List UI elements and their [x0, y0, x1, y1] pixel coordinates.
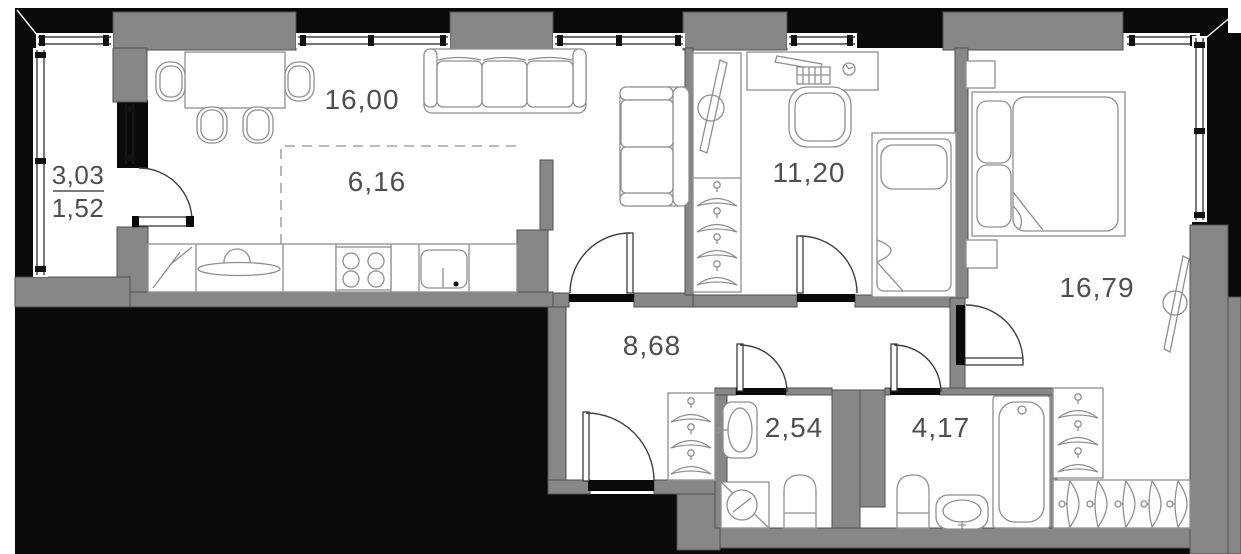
- armchair-cushion: [621, 100, 673, 147]
- wall-living-hall-b: [540, 160, 553, 230]
- bathtub: [993, 396, 1050, 528]
- desk-chair: [789, 87, 851, 147]
- window-balcony-top: [36, 33, 113, 48]
- bed-single: [872, 133, 956, 297]
- dining-chair: [156, 62, 185, 101]
- wall-baths-divider-a: [832, 390, 860, 528]
- room-label-bathroom-guest: 2,54: [765, 412, 824, 443]
- wall-baths-divider-b: [860, 390, 885, 507]
- pillow: [977, 101, 1011, 163]
- room-label-hallway: 8,68: [623, 330, 682, 361]
- sofa-cushion: [527, 61, 573, 107]
- wall-top-a: [113, 12, 296, 50]
- coat-rack: [668, 393, 715, 480]
- wall-living-hall-a: [517, 230, 548, 292]
- wall-balcony-bottom: [15, 277, 130, 307]
- duvet: [1013, 97, 1118, 231]
- desk: [747, 52, 878, 90]
- window-living-1: [296, 33, 450, 48]
- wall-hall-left: [548, 307, 566, 485]
- sofa-armrest: [573, 49, 586, 107]
- window-balcony-left: [33, 48, 48, 277]
- wall-top-b: [450, 12, 553, 50]
- wall-bath2-top-2: [940, 388, 1053, 395]
- dining-table-set: [156, 52, 314, 143]
- door-balcony: [132, 168, 194, 227]
- armchair-arm: [620, 87, 673, 100]
- room-label-bedroom-master: 16,79: [1059, 272, 1134, 303]
- door-bathroom-main: [890, 344, 941, 395]
- keyboard: [797, 67, 830, 84]
- wall-kitchen-bottom: [130, 292, 553, 307]
- exterior-right-column: [1228, 33, 1241, 297]
- toilet-main: [897, 475, 929, 528]
- room-label-living: 16,00: [324, 84, 399, 115]
- wall-balcony-pier: [113, 48, 147, 102]
- balcony-area-full: 3,03: [52, 160, 105, 190]
- wall-bath1-top-1: [715, 388, 736, 395]
- room-label-kitchen-zone: 6,16: [348, 166, 407, 197]
- dining-table: [185, 52, 285, 108]
- window-bedroom-small: [787, 33, 857, 48]
- floor-plan: 16,00 6,16 11,20 16,79 8,68 2,54 4,17 3,…: [0, 0, 1241, 554]
- wall-hall-top-2: [634, 293, 693, 307]
- wall-bottom-band: [720, 528, 1190, 548]
- door-living: [569, 233, 634, 302]
- sink-bathroom-main: [936, 495, 988, 529]
- wall-entry-right: [654, 480, 720, 494]
- exterior-top-mid-fill: [857, 33, 943, 48]
- nightstand: [966, 61, 995, 88]
- armchair-arm: [620, 193, 673, 206]
- door-entrance: [583, 412, 654, 491]
- wall-right-outer: [1228, 297, 1241, 554]
- balcony-area-counted: 1,52: [52, 193, 105, 223]
- kitchen-sink: [421, 250, 467, 288]
- room-label-bedroom-small: 11,20: [773, 157, 846, 188]
- exterior-bottom-left-mass: [15, 307, 548, 554]
- sofa-cushion: [482, 61, 527, 107]
- door-bathroom-guest: [736, 344, 787, 395]
- bed-double: [972, 92, 1125, 236]
- wall-entry-step: [677, 494, 720, 550]
- dining-chair: [197, 107, 227, 143]
- armchair: [620, 87, 689, 206]
- sofa: [424, 49, 586, 113]
- stove: [336, 247, 391, 290]
- window-bedroom-master-top: [1125, 33, 1200, 48]
- room-label-bathroom-main: 4,17: [912, 412, 971, 443]
- balcony-area-fraction: 3,03 1,52: [52, 160, 105, 223]
- wall-hall-top-1: [553, 293, 569, 307]
- nightstand: [966, 240, 997, 268]
- wall-entry-left: [548, 480, 590, 494]
- exterior-left-column: [15, 8, 33, 282]
- armchair-cushion: [621, 147, 673, 193]
- wall-top-c: [683, 12, 787, 50]
- door-bedroom-master: [956, 305, 1023, 365]
- window-bedroom-master-right: [1192, 36, 1207, 222]
- door-bedroom-small: [797, 236, 857, 302]
- wall-bath2-top-1: [885, 388, 890, 395]
- wall-top-d: [943, 12, 1123, 50]
- wall-bath1-top-2: [786, 388, 832, 395]
- washing-machine: [721, 482, 769, 528]
- dining-chair: [243, 107, 273, 143]
- dining-chair: [285, 62, 314, 101]
- wall-right: [1190, 225, 1228, 554]
- wall-hall-top-3: [693, 295, 797, 307]
- sofa-armrest: [424, 49, 437, 107]
- armchair-back: [673, 87, 689, 206]
- pillow: [977, 165, 1011, 227]
- toilet-guest: [784, 475, 816, 528]
- window-living-2: [553, 33, 685, 48]
- tv-bedroom-master: [1163, 256, 1189, 352]
- exterior-entry-notch: [548, 494, 677, 554]
- wardrobe-bedroom-small: [693, 53, 741, 292]
- wardrobe-bedroom-master: [1053, 388, 1190, 528]
- sofa-cushion: [437, 61, 482, 107]
- kitchen-counter: [148, 244, 517, 292]
- pillow: [881, 145, 947, 189]
